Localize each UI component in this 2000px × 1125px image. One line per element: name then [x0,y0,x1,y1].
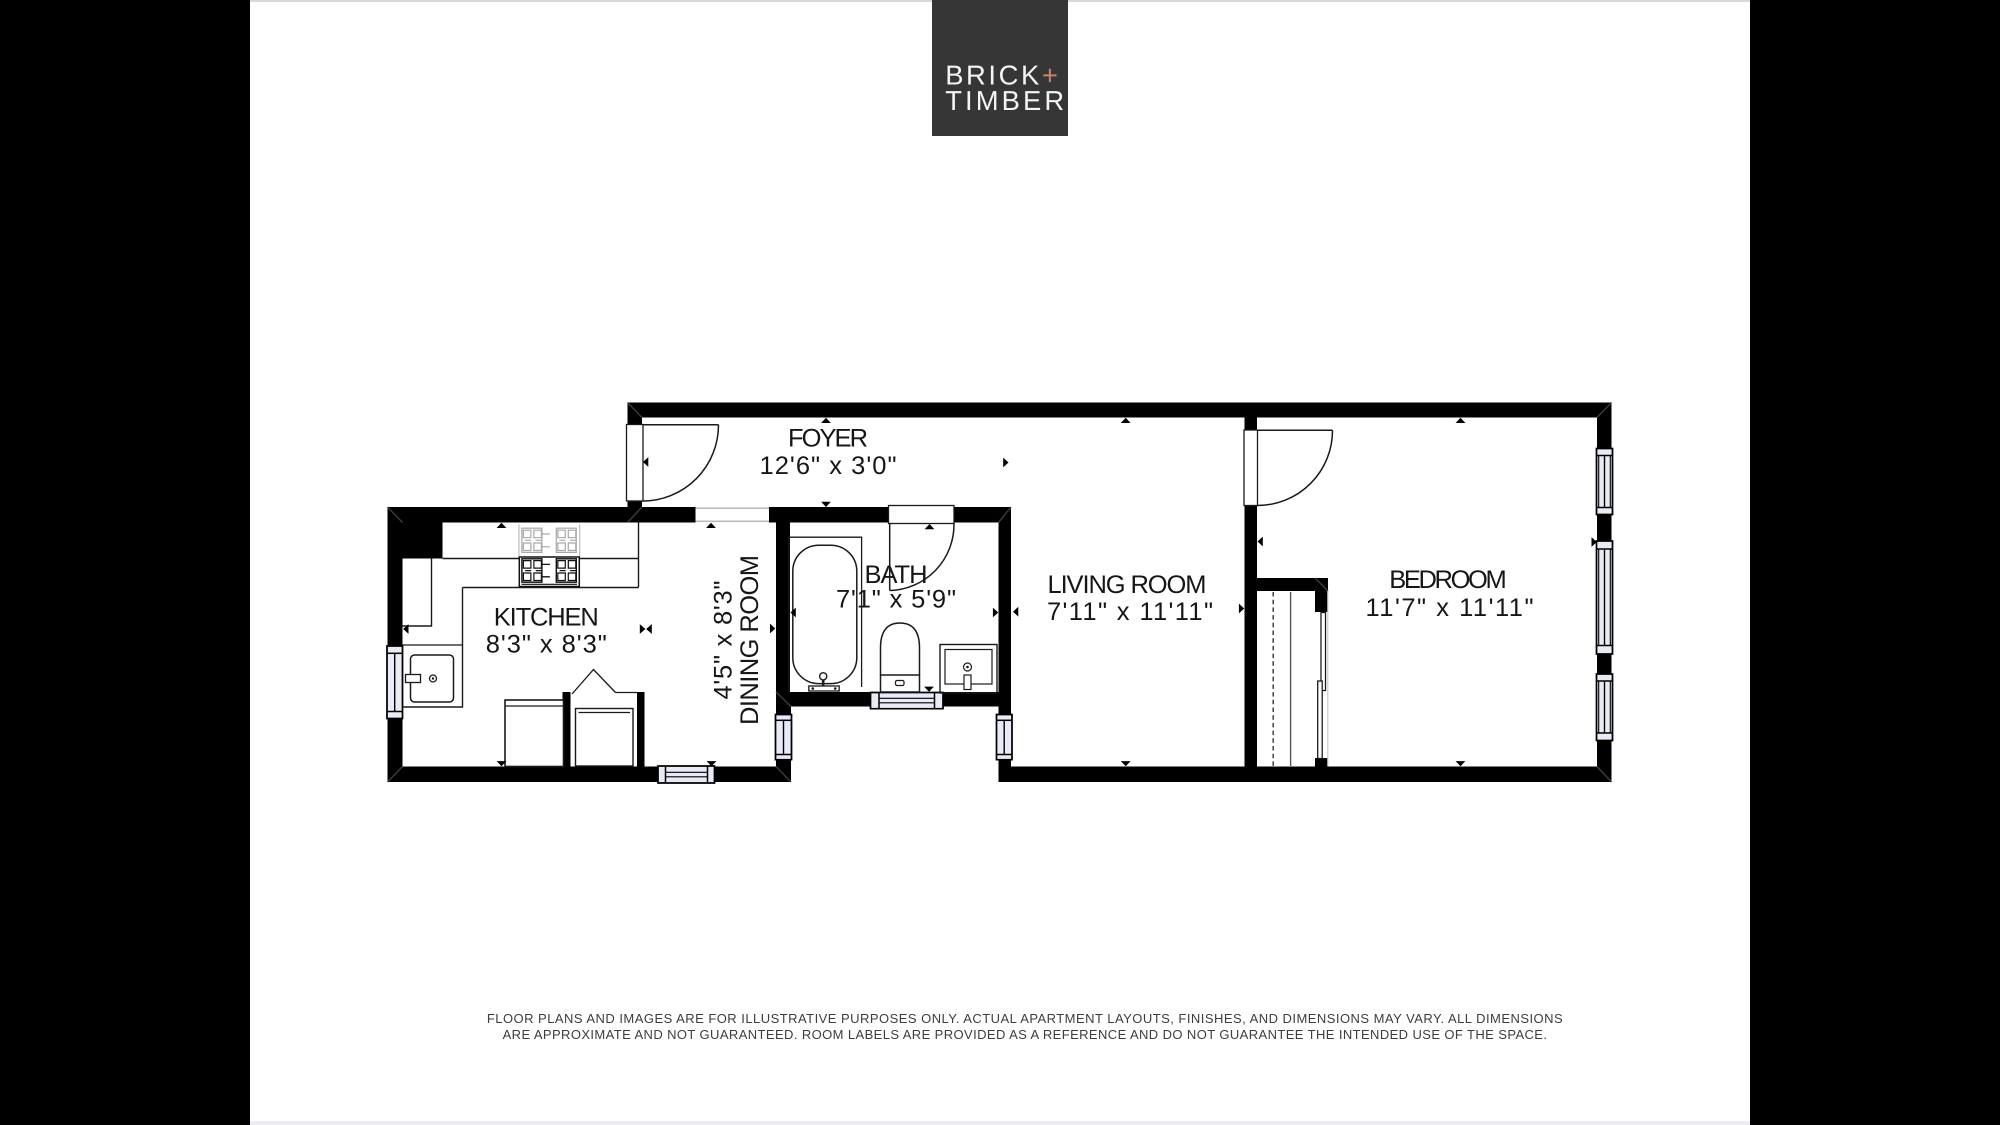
svg-text:12'6" x 3'0": 12'6" x 3'0" [760,452,897,480]
svg-text:LIVING ROOM: LIVING ROOM [1048,571,1207,599]
svg-text:KITCHEN: KITCHEN [494,604,599,632]
svg-text:11'7" x 11'11": 11'7" x 11'11" [1366,594,1534,622]
svg-text:7'11" x 11'11": 7'11" x 11'11" [1047,598,1213,626]
svg-text:7'1" x 5'9": 7'1" x 5'9" [836,586,956,614]
svg-text:FOYER: FOYER [788,425,868,453]
svg-text:8'3" x 8'3": 8'3" x 8'3" [486,631,607,659]
svg-text:BEDROOM: BEDROOM [1389,566,1507,594]
svg-text:DINING ROOM: DINING ROOM [736,555,764,725]
svg-text:4'5" x 8'3": 4'5" x 8'3" [710,581,738,700]
